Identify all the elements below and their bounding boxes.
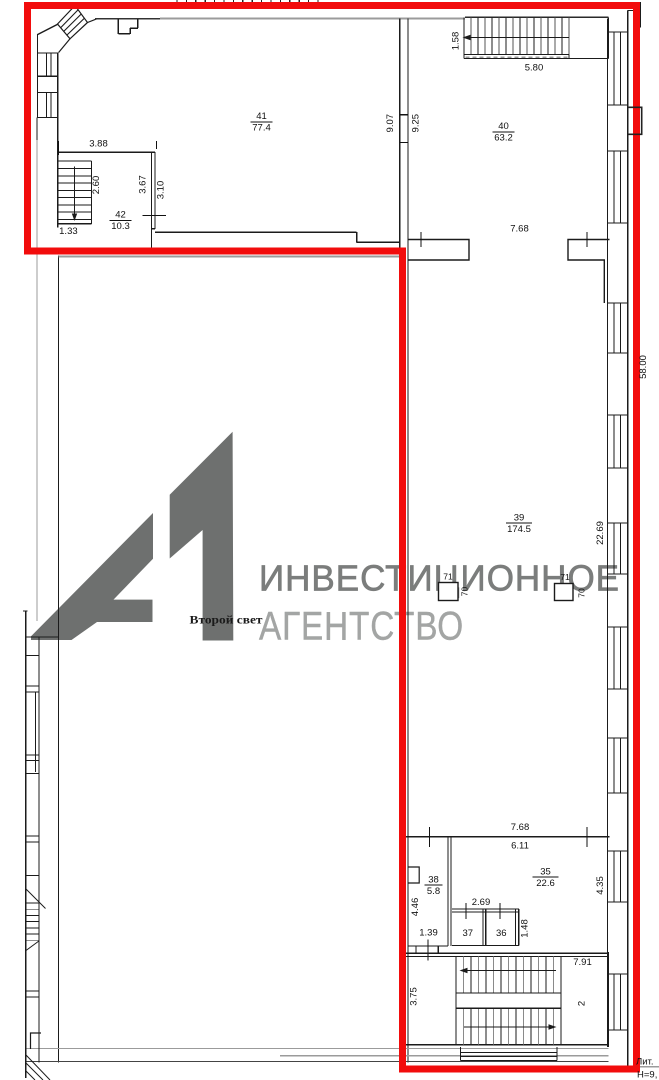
svg-text:5.8: 5.8 xyxy=(427,886,440,897)
svg-text:1.33: 1.33 xyxy=(59,226,78,237)
svg-text:22.69: 22.69 xyxy=(595,521,606,545)
svg-text:22.6: 22.6 xyxy=(536,878,555,889)
svg-text:2.69: 2.69 xyxy=(472,897,491,908)
svg-text:3.88: 3.88 xyxy=(89,139,108,150)
svg-text:4.46: 4.46 xyxy=(410,898,421,917)
svg-text:38: 38 xyxy=(428,874,439,885)
svg-text:4.35: 4.35 xyxy=(595,876,606,895)
svg-text:37: 37 xyxy=(463,928,474,939)
svg-text:7.91: 7.91 xyxy=(573,957,592,968)
svg-text:39: 39 xyxy=(514,513,525,524)
svg-text:1.39: 1.39 xyxy=(419,928,438,939)
svg-text:1.48: 1.48 xyxy=(520,919,531,938)
svg-text:1.58: 1.58 xyxy=(451,32,462,51)
svg-text:58.00: 58.00 xyxy=(638,355,649,379)
svg-text:70: 70 xyxy=(460,587,470,597)
svg-text:40: 40 xyxy=(498,121,509,132)
svg-text:2: 2 xyxy=(577,1001,588,1006)
svg-text:3.75: 3.75 xyxy=(409,987,420,1006)
svg-text:Лит.: Лит. xyxy=(636,1057,653,1068)
svg-text:7.68: 7.68 xyxy=(510,224,529,235)
svg-text:42: 42 xyxy=(115,210,126,221)
svg-text:70: 70 xyxy=(577,588,587,598)
svg-text:10.3: 10.3 xyxy=(111,221,130,232)
svg-text:Н=9,: Н=9, xyxy=(637,1070,657,1080)
svg-text:71: 71 xyxy=(443,572,453,582)
svg-text:174.5: 174.5 xyxy=(507,524,531,535)
svg-text:36: 36 xyxy=(496,928,507,939)
svg-text:3.67: 3.67 xyxy=(138,175,149,194)
svg-text:АГЕНТСТВО: АГЕНТСТВО xyxy=(259,605,464,649)
svg-text:3.10: 3.10 xyxy=(155,181,166,200)
svg-text:9.25: 9.25 xyxy=(411,114,422,133)
svg-text:5.80: 5.80 xyxy=(525,63,544,74)
svg-text:7.68: 7.68 xyxy=(511,822,530,833)
svg-text:6.11: 6.11 xyxy=(511,840,529,851)
svg-text:71: 71 xyxy=(560,572,570,582)
svg-text:9.07: 9.07 xyxy=(385,114,396,133)
svg-text:63.2: 63.2 xyxy=(494,133,513,144)
svg-text:41: 41 xyxy=(256,111,267,122)
svg-text:77.4: 77.4 xyxy=(252,123,271,134)
svg-text:2.60: 2.60 xyxy=(91,176,102,195)
svg-text:Второй свет: Второй свет xyxy=(190,615,263,627)
svg-text:35: 35 xyxy=(540,866,551,877)
